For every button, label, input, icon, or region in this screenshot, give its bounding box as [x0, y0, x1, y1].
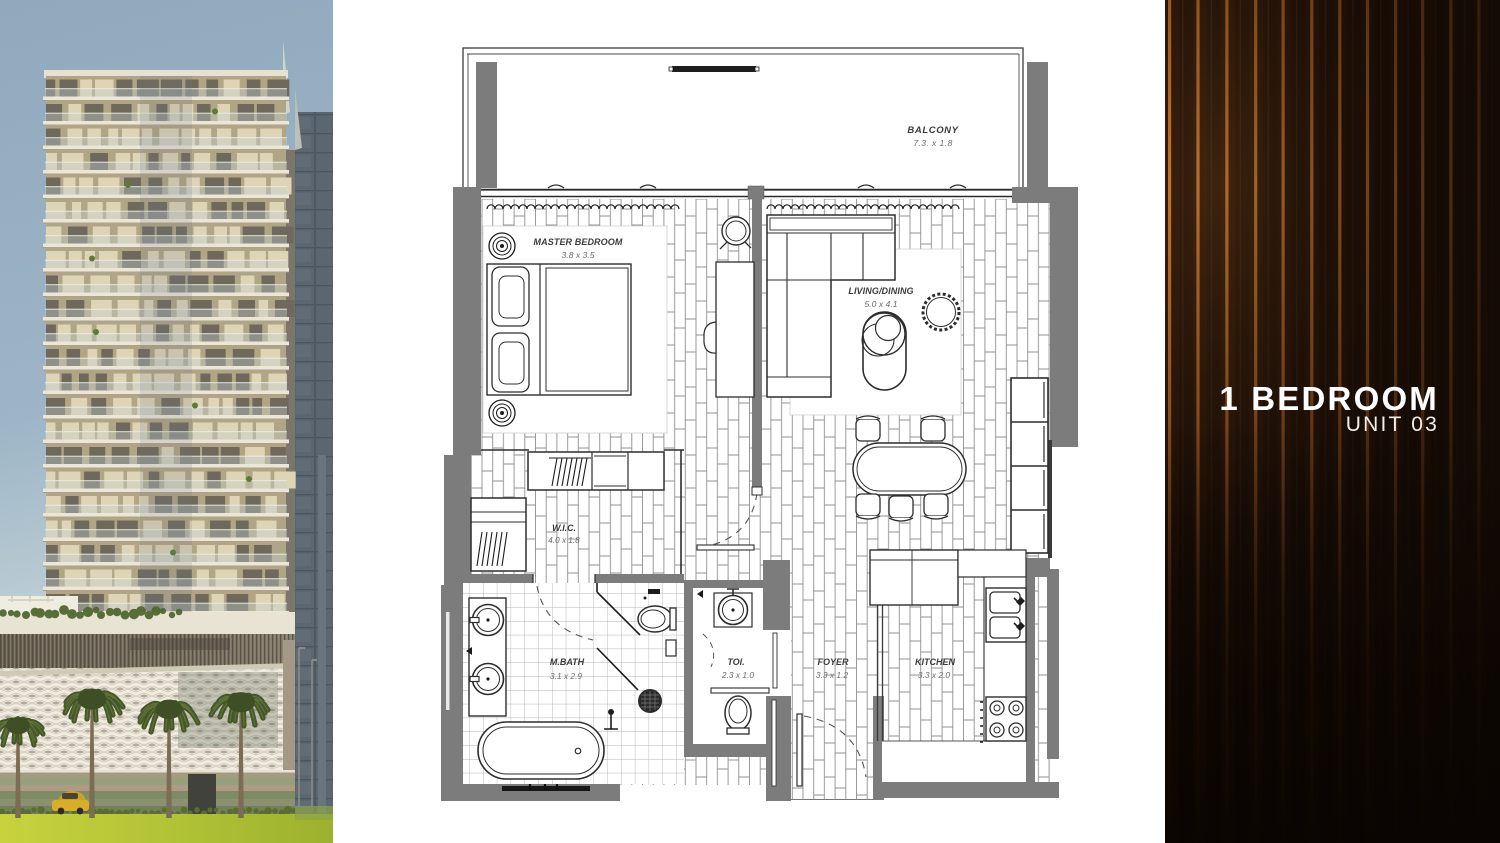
svg-text:5.0 x 4.1: 5.0 x 4.1	[865, 299, 898, 309]
svg-text:KITCHEN: KITCHEN	[915, 657, 955, 667]
svg-text:MASTER BEDROOM: MASTER BEDROOM	[534, 237, 623, 247]
svg-text:LIVING/DINING: LIVING/DINING	[848, 286, 913, 296]
svg-text:3.3 x 2.0: 3.3 x 2.0	[918, 670, 950, 680]
svg-text:W.I.C.: W.I.C.	[552, 523, 576, 533]
svg-text:2.3 x 1.0: 2.3 x 1.0	[721, 670, 754, 680]
svg-text:4.0 x 1.8: 4.0 x 1.8	[548, 536, 580, 545]
svg-text:3.1 x 2.9: 3.1 x 2.9	[550, 671, 582, 681]
svg-text:FOYER: FOYER	[817, 657, 849, 667]
svg-text:7.3. x 1.8: 7.3. x 1.8	[913, 138, 952, 148]
svg-text:M.BATH: M.BATH	[550, 657, 585, 667]
svg-text:3.8 x 3.5: 3.8 x 3.5	[562, 250, 595, 260]
svg-text:3.3 x 1.2: 3.3 x 1.2	[816, 670, 848, 680]
svg-text:TOI.: TOI.	[727, 657, 744, 667]
svg-text:BALCONY: BALCONY	[907, 125, 959, 136]
